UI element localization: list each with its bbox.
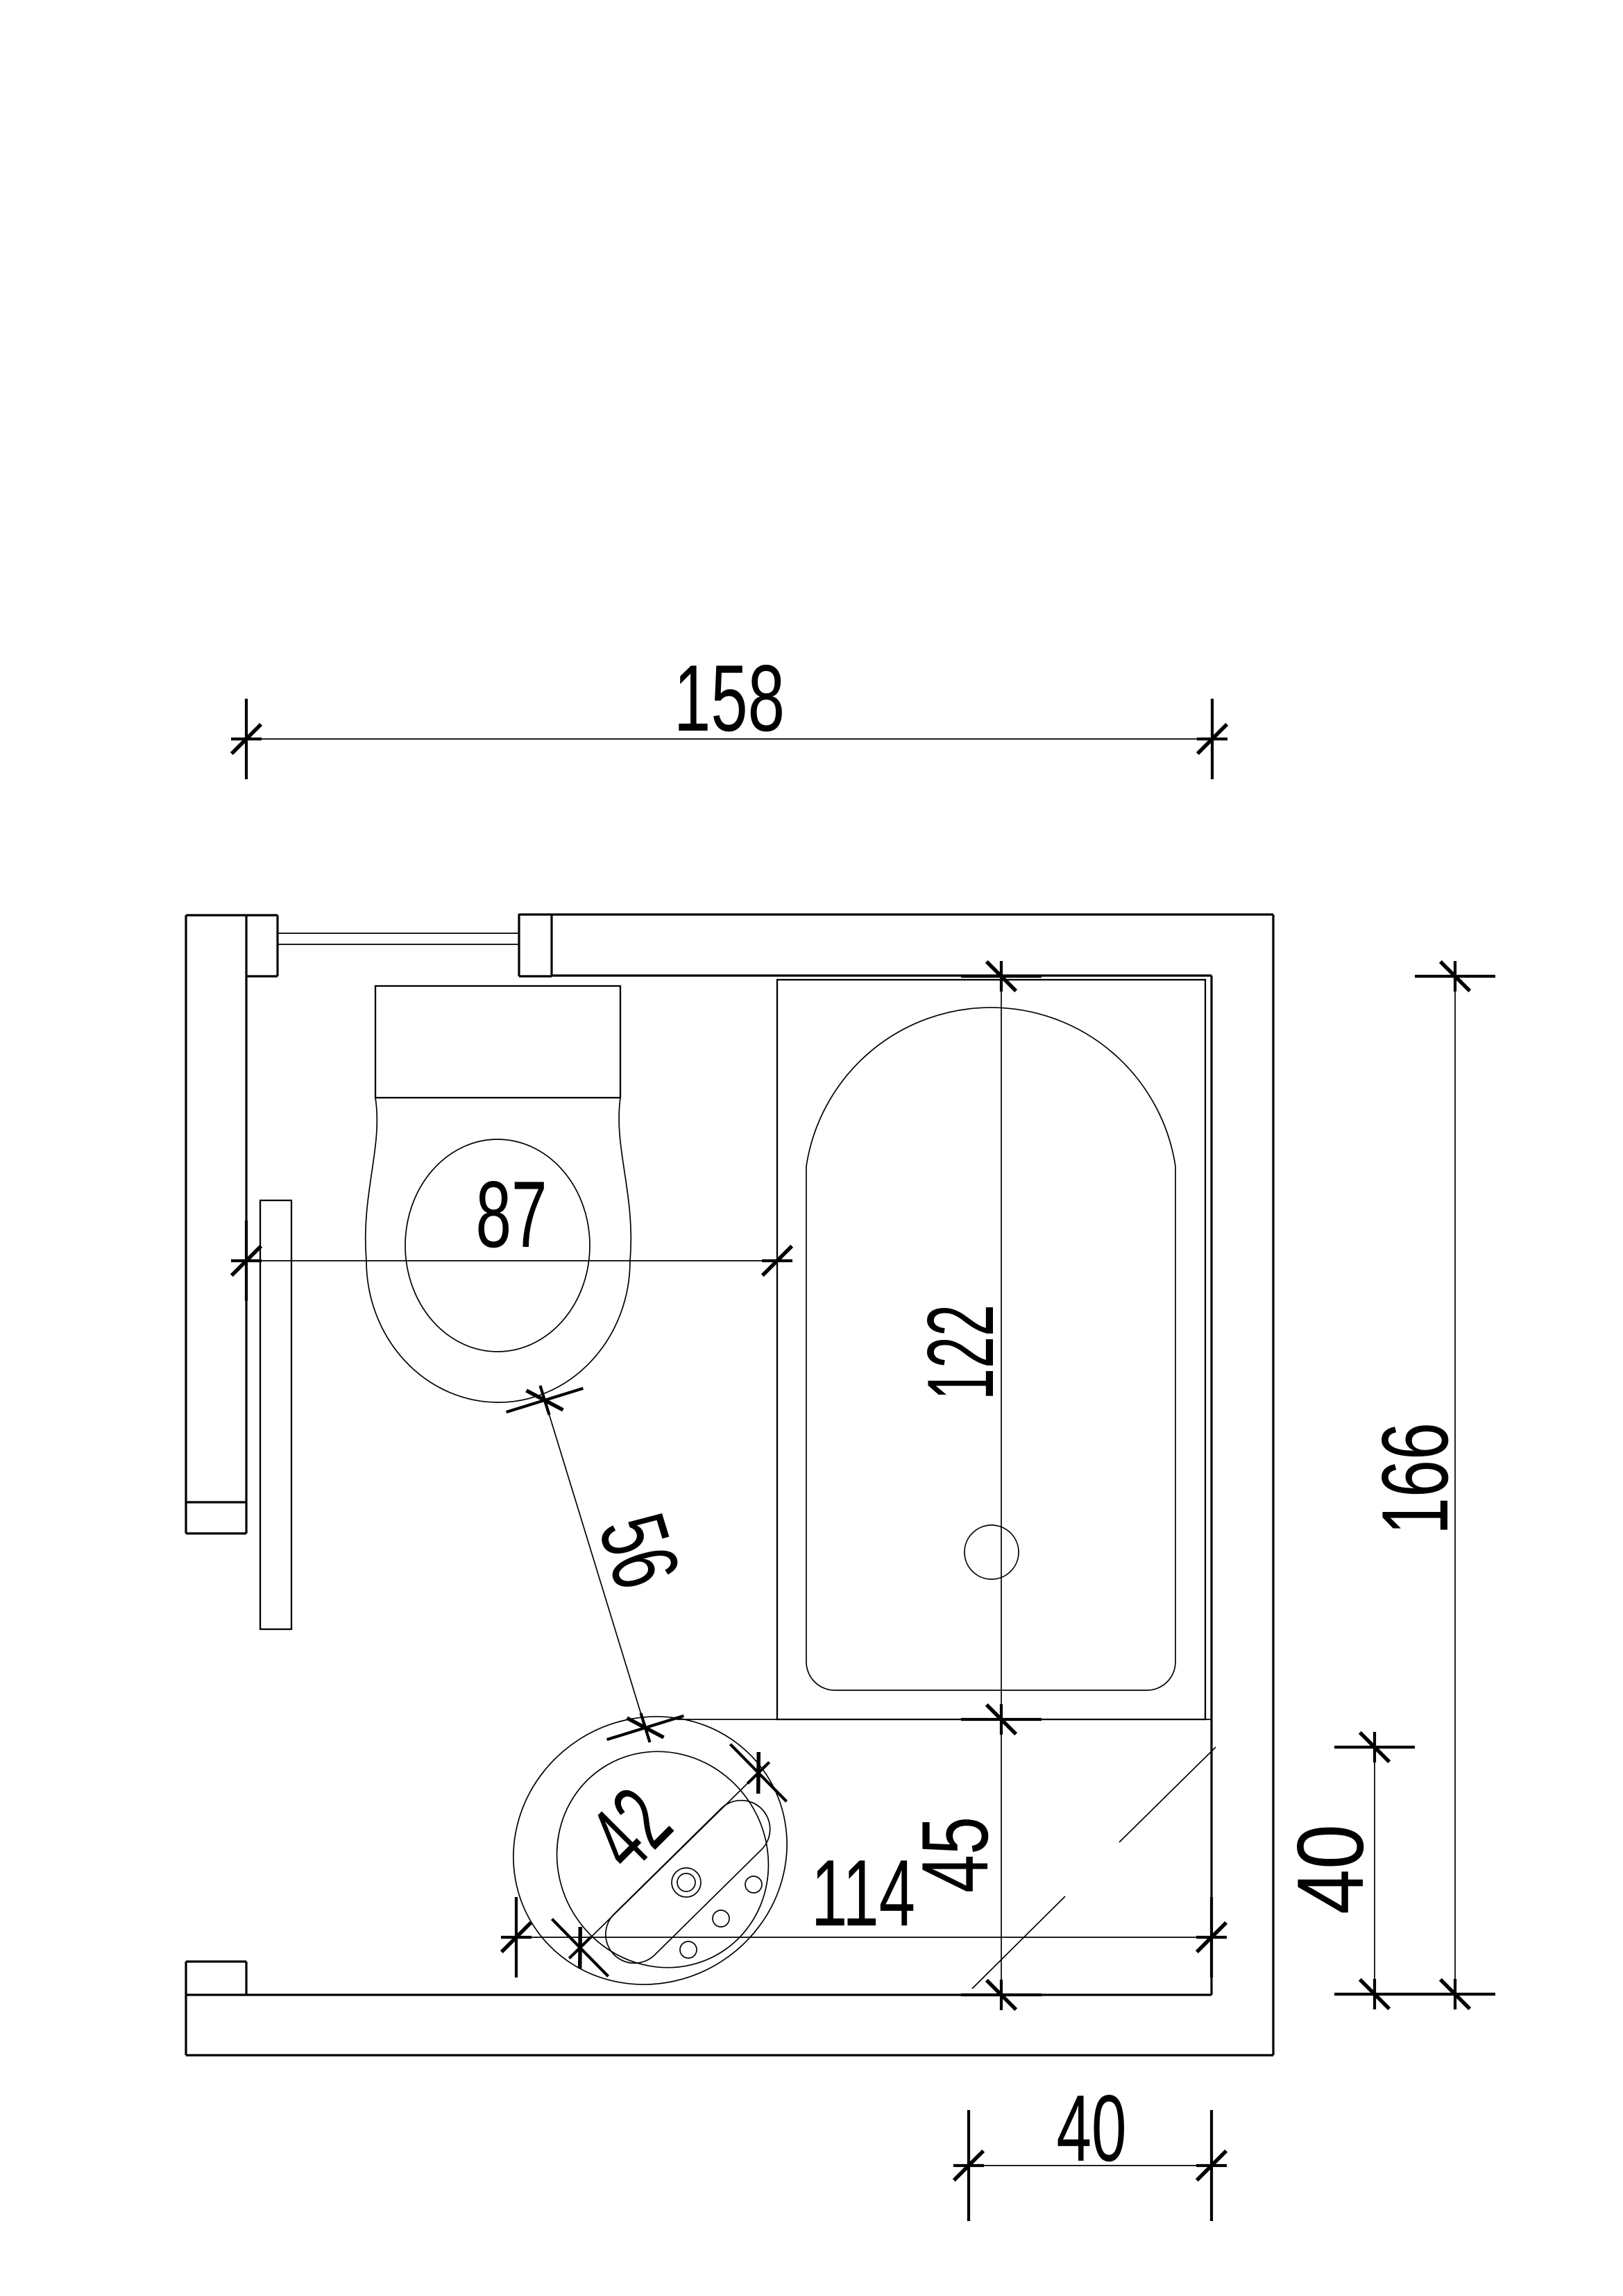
svg-text:45: 45 (902, 1817, 1008, 1893)
svg-text:114: 114 (811, 1840, 915, 1946)
svg-text:87: 87 (476, 1162, 547, 1267)
svg-text:122: 122 (908, 1304, 1013, 1400)
svg-text:158: 158 (674, 645, 785, 751)
svg-text:40: 40 (1057, 2075, 1127, 2181)
svg-text:166: 166 (1362, 1422, 1468, 1535)
svg-text:40: 40 (1277, 1824, 1383, 1914)
